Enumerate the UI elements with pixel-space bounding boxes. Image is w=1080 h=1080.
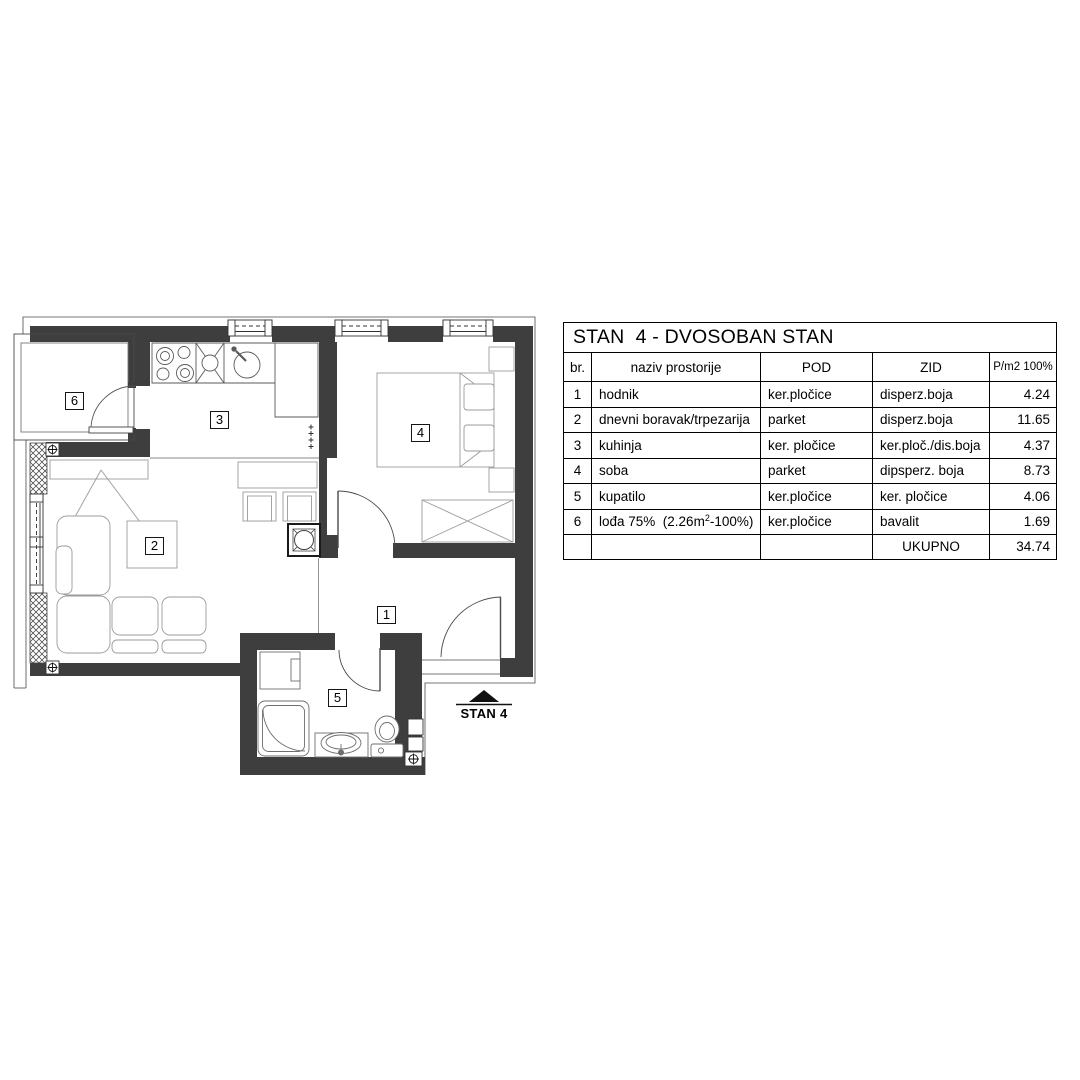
dining-table [238, 462, 317, 488]
bedroom-door [338, 491, 395, 548]
cell-zid: disperz.boja [873, 408, 990, 433]
cell-naziv: dnevni boravak/trpezarija [592, 408, 761, 433]
living-room-furniture [50, 460, 206, 653]
cell-p: 11.65 [990, 408, 1056, 433]
cell-naziv: kupatilo [592, 484, 761, 509]
pillow [464, 384, 494, 410]
nightstand [489, 468, 514, 492]
entrance-marker-icon [456, 690, 512, 705]
room-label-3: 3 [210, 411, 229, 429]
cell-naziv: hodnik [592, 382, 761, 407]
cell-pod: ker.pločice [761, 382, 873, 407]
washing-machine-icon [260, 652, 300, 689]
table-row: 5 kupatilo ker.pločice ker. pločice 4.06 [564, 484, 1056, 510]
window-top-3 [443, 320, 493, 336]
dining-set [238, 462, 317, 521]
cell-p: 8.73 [990, 459, 1056, 484]
wardrobe [422, 500, 513, 542]
cell-pod: parket [761, 408, 873, 433]
room-label-6: 6 [65, 392, 84, 410]
tv-cabinet [50, 460, 148, 479]
bathroom-door [339, 648, 380, 691]
cell-pod: ker. pločice [761, 433, 873, 458]
cell-br: 5 [564, 484, 592, 509]
washbasin-icon [315, 733, 368, 758]
room-area-table: STAN 4 - DVOSOBAN STAN br. naziv prostor… [563, 322, 1057, 560]
cell-br: 2 [564, 408, 592, 433]
cell-p: 1.69 [990, 510, 1056, 535]
cell-naziv: lođa 75% (2.26m2-100%) [592, 510, 761, 535]
cell-naziv: soba [592, 459, 761, 484]
radiator-icon [309, 425, 314, 450]
room-label-5: 5 [328, 689, 347, 707]
shower-icon [258, 701, 309, 756]
room-label-1: 1 [377, 606, 396, 624]
cell-zid: dipsperz. boja [873, 459, 990, 484]
cell-p: 4.24 [990, 382, 1056, 407]
nightstand [489, 347, 514, 371]
bed [377, 373, 494, 467]
header-naziv: naziv prostorije [592, 353, 761, 381]
window-top-2 [335, 320, 388, 336]
table-row: 2 dnevni boravak/trpezarija parket dispe… [564, 408, 1056, 434]
cell-br: 3 [564, 433, 592, 458]
cell-p: 4.37 [990, 433, 1056, 458]
table-row: 6 lođa 75% (2.26m2-100%) ker.pločice bav… [564, 510, 1056, 536]
cell-p: 4.06 [990, 484, 1056, 509]
loggia [14, 334, 136, 440]
cell-pod: ker.pločice [761, 484, 873, 509]
kitchen-fixtures [150, 343, 319, 458]
cell-naziv: kuhinja [592, 433, 761, 458]
total-value: 34.74 [990, 535, 1056, 559]
entrance-door [422, 597, 501, 674]
total-label: UKUPNO [873, 535, 990, 559]
floor-plan [0, 300, 560, 800]
table-header-row: br. naziv prostorije POD ZID P/m2 100% [564, 353, 1056, 382]
cell-zid: ker.ploč./dis.boja [873, 433, 990, 458]
window-top-1 [228, 320, 272, 336]
header-pod: POD [761, 353, 873, 381]
cell-zid: disperz.boja [873, 382, 990, 407]
floorplan-page: { "plan": { "labels": { "room1": "1", "r… [0, 0, 1080, 1080]
vent-shaft [288, 524, 320, 556]
cell-br: 6 [564, 510, 592, 535]
stan-marker-label: STAN 4 [452, 706, 516, 721]
pillow [464, 425, 494, 451]
window-left [30, 494, 43, 593]
header-zid: ZID [873, 353, 990, 381]
header-br: br. [564, 353, 592, 381]
cell-zid: ker. pločice [873, 484, 990, 509]
header-p: P/m2 100% [990, 353, 1056, 381]
table-row: 3 kuhinja ker. pločice ker.ploč./dis.boj… [564, 433, 1056, 459]
room-label-4: 4 [411, 424, 430, 442]
cell-zid: bavalit [873, 510, 990, 535]
table-row: 1 hodnik ker.pločice disperz.boja 4.24 [564, 382, 1056, 408]
table-total-row: UKUPNO 34.74 [564, 535, 1056, 559]
cell-pod: parket [761, 459, 873, 484]
bedroom-furniture [377, 347, 514, 542]
cell-br: 4 [564, 459, 592, 484]
loggia-door-leaf [89, 427, 133, 433]
room-label-2: 2 [145, 537, 164, 555]
table-title: STAN 4 - DVOSOBAN STAN [564, 323, 1056, 353]
table-row: 4 soba parket dipsperz. boja 8.73 [564, 459, 1056, 485]
cell-pod: ker.pločice [761, 510, 873, 535]
cell-br: 1 [564, 382, 592, 407]
